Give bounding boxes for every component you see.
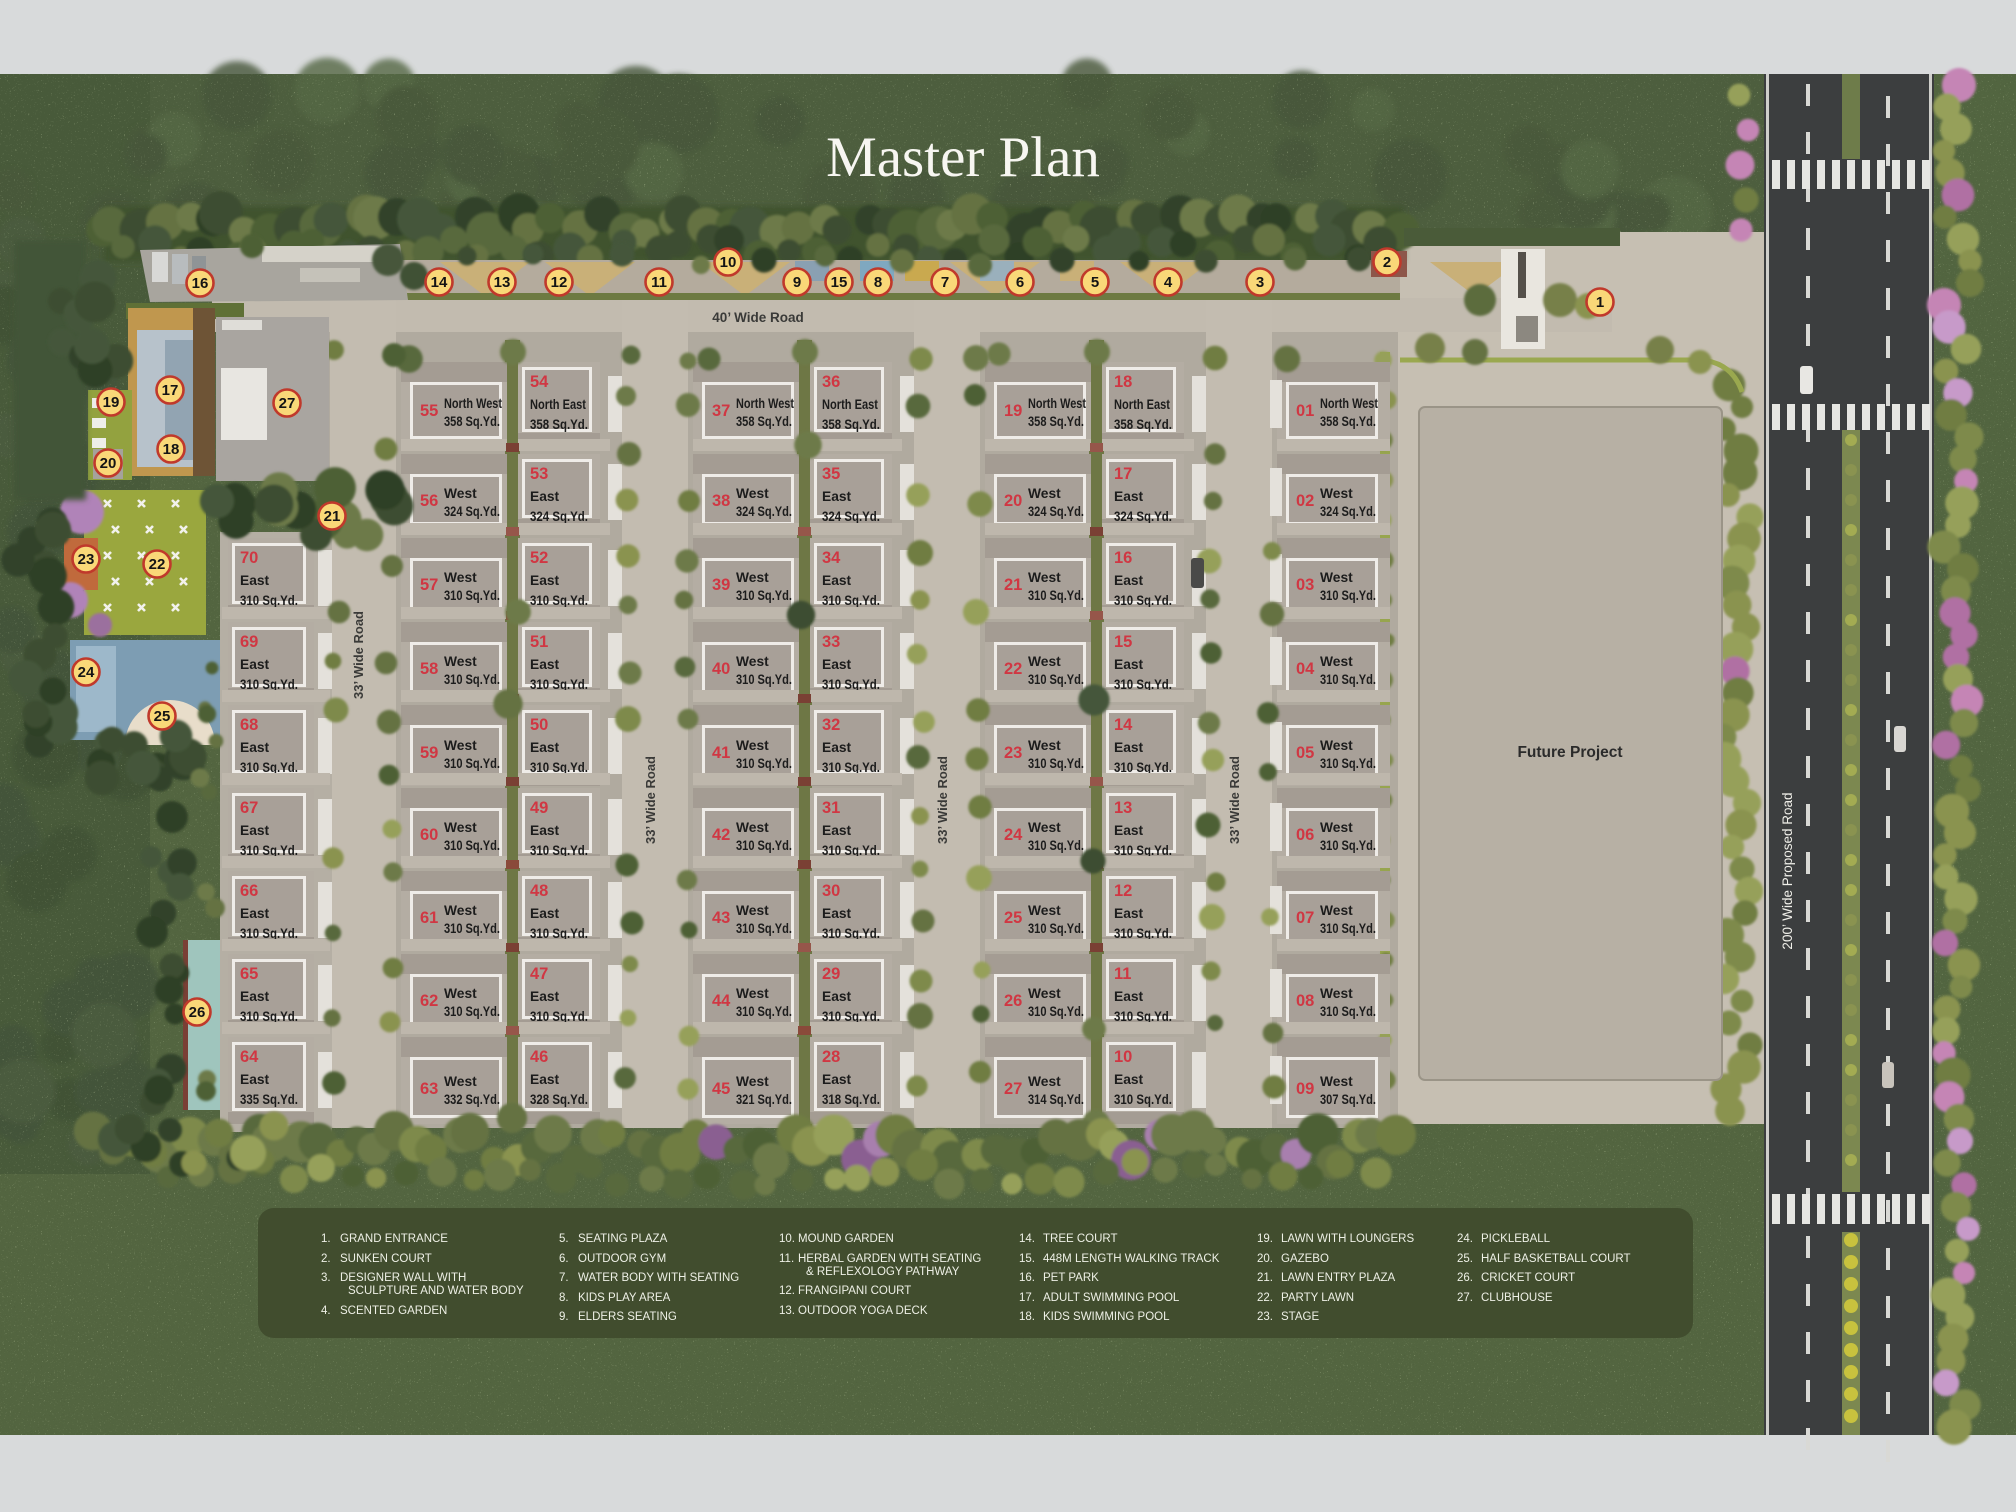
svg-text:44: 44 [712, 992, 731, 1010]
svg-text:East: East [822, 740, 852, 755]
svg-text:310 Sq.Yd.: 310 Sq.Yd. [530, 1009, 588, 1024]
svg-text:310 Sq.Yd.: 310 Sq.Yd. [822, 593, 880, 608]
svg-text:11: 11 [1114, 965, 1131, 983]
svg-text:North West: North West [1320, 396, 1378, 411]
svg-text:26.: 26. [1457, 1272, 1473, 1284]
svg-text:ADULT SWIMMING POOL: ADULT SWIMMING POOL [1043, 1292, 1180, 1304]
svg-text:OUTDOOR YOGA DECK: OUTDOOR YOGA DECK [798, 1305, 928, 1317]
svg-text:33’ Wide Road: 33’ Wide Road [643, 756, 658, 844]
svg-text:310 Sq.Yd.: 310 Sq.Yd. [736, 838, 792, 853]
svg-text:310 Sq.Yd.: 310 Sq.Yd. [736, 921, 792, 936]
svg-text:310 Sq.Yd.: 310 Sq.Yd. [1114, 677, 1172, 692]
svg-text:2.: 2. [321, 1253, 331, 1265]
svg-text:7: 7 [941, 274, 949, 291]
svg-text:14.: 14. [1019, 1233, 1035, 1245]
svg-text:54: 54 [530, 373, 549, 391]
svg-text:SUNKEN COURT: SUNKEN COURT [340, 1253, 432, 1265]
svg-text:358 Sq.Yd.: 358 Sq.Yd. [736, 414, 792, 429]
svg-text:16.: 16. [1019, 1272, 1035, 1284]
svg-text:15: 15 [1114, 633, 1132, 651]
svg-text:SCULPTURE AND WATER BODY: SCULPTURE AND WATER BODY [348, 1285, 524, 1297]
svg-text:19: 19 [1004, 402, 1022, 420]
svg-text:310 Sq.Yd.: 310 Sq.Yd. [736, 756, 792, 771]
svg-text:East: East [822, 989, 852, 1004]
svg-text:53: 53 [530, 465, 548, 483]
svg-text:10.: 10. [779, 1233, 795, 1245]
svg-text:310 Sq.Yd.: 310 Sq.Yd. [736, 672, 792, 687]
svg-text:17: 17 [162, 382, 179, 399]
svg-text:East: East [822, 823, 852, 838]
svg-text:310 Sq.Yd.: 310 Sq.Yd. [1320, 672, 1376, 687]
svg-text:310 Sq.Yd.: 310 Sq.Yd. [530, 593, 588, 608]
svg-text:38: 38 [712, 492, 730, 510]
svg-text:West: West [444, 486, 477, 501]
svg-text:310 Sq.Yd.: 310 Sq.Yd. [240, 677, 298, 692]
svg-text:55: 55 [420, 402, 438, 420]
svg-text:9: 9 [793, 274, 801, 291]
svg-text:310 Sq.Yd.: 310 Sq.Yd. [1320, 921, 1376, 936]
svg-text:West: West [736, 738, 769, 753]
svg-text:32: 32 [822, 716, 840, 734]
svg-text:West: West [444, 903, 477, 918]
svg-text:33’ Wide Road: 33’ Wide Road [935, 756, 950, 844]
svg-text:310 Sq.Yd.: 310 Sq.Yd. [240, 760, 298, 775]
svg-text:27.: 27. [1457, 1292, 1473, 1304]
svg-text:310 Sq.Yd.: 310 Sq.Yd. [444, 838, 500, 853]
svg-text:324 Sq.Yd.: 324 Sq.Yd. [444, 504, 500, 519]
svg-text:GRAND ENTRANCE: GRAND ENTRANCE [340, 1233, 448, 1245]
svg-text:324 Sq.Yd.: 324 Sq.Yd. [822, 509, 880, 524]
svg-text:310 Sq.Yd.: 310 Sq.Yd. [1114, 1092, 1172, 1107]
svg-text:PET PARK: PET PARK [1043, 1272, 1099, 1284]
svg-text:16: 16 [192, 275, 209, 292]
svg-text:310 Sq.Yd.: 310 Sq.Yd. [530, 926, 588, 941]
svg-text:East: East [1114, 657, 1144, 672]
svg-text:West: West [1028, 903, 1061, 918]
svg-text:358 Sq.Yd.: 358 Sq.Yd. [530, 417, 588, 432]
svg-text:East: East [240, 573, 270, 588]
svg-text:5.: 5. [559, 1233, 569, 1245]
svg-text:West: West [736, 1074, 769, 1089]
svg-text:310 Sq.Yd.: 310 Sq.Yd. [1114, 926, 1172, 941]
svg-text:West: West [736, 486, 769, 501]
svg-text:310 Sq.Yd.: 310 Sq.Yd. [240, 926, 298, 941]
svg-text:70: 70 [240, 549, 258, 567]
svg-text:22.: 22. [1257, 1292, 1273, 1304]
svg-text:310 Sq.Yd.: 310 Sq.Yd. [822, 760, 880, 775]
svg-text:310 Sq.Yd.: 310 Sq.Yd. [530, 677, 588, 692]
svg-text:310 Sq.Yd.: 310 Sq.Yd. [822, 843, 880, 858]
svg-text:332 Sq.Yd.: 332 Sq.Yd. [444, 1092, 500, 1107]
svg-text:37: 37 [712, 402, 730, 420]
svg-text:East: East [240, 989, 270, 1004]
svg-text:52: 52 [530, 549, 548, 567]
svg-text:08: 08 [1296, 992, 1314, 1010]
svg-text:West: West [444, 986, 477, 1001]
svg-text:West: West [1320, 738, 1353, 753]
svg-text:310 Sq.Yd.: 310 Sq.Yd. [1028, 756, 1084, 771]
svg-text:West: West [736, 654, 769, 669]
svg-text:04: 04 [1296, 660, 1315, 678]
svg-text:West: West [736, 986, 769, 1001]
svg-text:310 Sq.Yd.: 310 Sq.Yd. [822, 1009, 880, 1024]
svg-text:310 Sq.Yd.: 310 Sq.Yd. [736, 588, 792, 603]
svg-text:East: East [530, 740, 560, 755]
svg-text:13: 13 [494, 274, 511, 291]
svg-text:26: 26 [1004, 992, 1022, 1010]
svg-text:48: 48 [530, 882, 548, 900]
svg-text:10: 10 [1114, 1048, 1132, 1066]
svg-text:318 Sq.Yd.: 318 Sq.Yd. [822, 1092, 880, 1107]
svg-text:25: 25 [154, 708, 171, 725]
svg-text:West: West [1028, 986, 1061, 1001]
svg-text:SCENTED GARDEN: SCENTED GARDEN [340, 1305, 447, 1317]
svg-text:HERBAL GARDEN WITH SEATING: HERBAL GARDEN WITH SEATING [798, 1253, 981, 1265]
svg-text:43: 43 [712, 909, 730, 927]
svg-text:West: West [444, 654, 477, 669]
svg-text:40’ Wide Road: 40’ Wide Road [712, 310, 803, 325]
svg-text:11.: 11. [779, 1253, 794, 1265]
svg-text:33’ Wide Road: 33’ Wide Road [351, 611, 366, 699]
svg-text:East: East [1114, 823, 1144, 838]
svg-text:31: 31 [822, 799, 840, 817]
svg-text:12: 12 [1114, 882, 1132, 900]
svg-text:7.: 7. [559, 1272, 569, 1284]
svg-text:324 Sq.Yd.: 324 Sq.Yd. [530, 509, 588, 524]
svg-text:310 Sq.Yd.: 310 Sq.Yd. [530, 843, 588, 858]
svg-text:22: 22 [1004, 660, 1022, 678]
svg-text:West: West [1320, 820, 1353, 835]
svg-text:Future Project: Future Project [1517, 744, 1622, 761]
svg-text:East: East [240, 906, 270, 921]
svg-text:ELDERS SEATING: ELDERS SEATING [578, 1311, 677, 1323]
svg-text:310 Sq.Yd.: 310 Sq.Yd. [240, 843, 298, 858]
svg-text:17: 17 [1114, 465, 1132, 483]
svg-text:23: 23 [78, 551, 95, 568]
svg-text:West: West [1320, 654, 1353, 669]
svg-text:35: 35 [822, 465, 840, 483]
svg-text:West: West [1320, 903, 1353, 918]
svg-text:310 Sq.Yd.: 310 Sq.Yd. [1320, 838, 1376, 853]
svg-text:24.: 24. [1457, 1233, 1473, 1245]
svg-text:SEATING PLAZA: SEATING PLAZA [578, 1233, 668, 1245]
svg-text:East: East [1114, 1072, 1144, 1087]
svg-text:11: 11 [651, 274, 667, 291]
svg-text:310 Sq.Yd.: 310 Sq.Yd. [1114, 843, 1172, 858]
svg-text:East: East [1114, 489, 1144, 504]
svg-text:62: 62 [420, 992, 438, 1010]
svg-text:18: 18 [1114, 373, 1132, 391]
svg-text:WATER BODY WITH SEATING: WATER BODY WITH SEATING [578, 1272, 739, 1284]
svg-text:East: East [530, 906, 560, 921]
svg-text:8.: 8. [559, 1292, 569, 1304]
svg-text:East: East [240, 657, 270, 672]
svg-text:310 Sq.Yd.: 310 Sq.Yd. [822, 677, 880, 692]
svg-text:East: East [530, 1072, 560, 1087]
svg-text:34: 34 [822, 549, 841, 567]
svg-text:45: 45 [712, 1080, 730, 1098]
svg-text:64: 64 [240, 1048, 259, 1066]
svg-text:14: 14 [1114, 716, 1133, 734]
svg-text:TREE COURT: TREE COURT [1043, 1233, 1118, 1245]
svg-text:CLUBHOUSE: CLUBHOUSE [1481, 1292, 1553, 1304]
svg-text:19.: 19. [1257, 1233, 1273, 1245]
svg-text:4: 4 [1164, 274, 1173, 291]
svg-text:HALF BASKETBALL COURT: HALF BASKETBALL COURT [1481, 1253, 1631, 1265]
svg-text:Master Plan: Master Plan [826, 126, 1100, 189]
svg-text:16: 16 [1114, 549, 1132, 567]
svg-text:West: West [1320, 1074, 1353, 1089]
svg-text:FRANGIPANI COURT: FRANGIPANI COURT [798, 1285, 911, 1297]
svg-text:North East: North East [822, 397, 878, 412]
svg-text:63: 63 [420, 1080, 438, 1098]
svg-text:307 Sq.Yd.: 307 Sq.Yd. [1320, 1092, 1376, 1107]
svg-text:20.: 20. [1257, 1253, 1273, 1265]
svg-text:05: 05 [1296, 744, 1314, 762]
svg-text:LAWN ENTRY PLAZA: LAWN ENTRY PLAZA [1281, 1272, 1396, 1284]
svg-text:East: East [1114, 573, 1144, 588]
svg-text:East: East [240, 740, 270, 755]
svg-text:DESIGNER WALL WITH: DESIGNER WALL WITH [340, 1272, 466, 1284]
svg-text:324 Sq.Yd.: 324 Sq.Yd. [1028, 504, 1084, 519]
svg-text:310 Sq.Yd.: 310 Sq.Yd. [444, 921, 500, 936]
svg-text:14: 14 [431, 274, 448, 291]
svg-text:13.: 13. [779, 1305, 795, 1317]
svg-text:310 Sq.Yd.: 310 Sq.Yd. [1028, 588, 1084, 603]
svg-text:310 Sq.Yd.: 310 Sq.Yd. [530, 760, 588, 775]
svg-text:27: 27 [279, 395, 296, 412]
svg-text:West: West [736, 570, 769, 585]
svg-text:KIDS SWIMMING POOL: KIDS SWIMMING POOL [1043, 1311, 1170, 1323]
svg-text:CRICKET COURT: CRICKET COURT [1481, 1272, 1575, 1284]
svg-text:310 Sq.Yd.: 310 Sq.Yd. [1114, 593, 1172, 608]
svg-text:33: 33 [822, 633, 840, 651]
svg-text:321 Sq.Yd.: 321 Sq.Yd. [736, 1092, 792, 1107]
svg-text:310 Sq.Yd.: 310 Sq.Yd. [1028, 672, 1084, 687]
svg-text:57: 57 [420, 576, 438, 594]
svg-text:22: 22 [149, 556, 166, 573]
svg-text:West: West [444, 570, 477, 585]
svg-text:310 Sq.Yd.: 310 Sq.Yd. [444, 756, 500, 771]
svg-text:07: 07 [1296, 909, 1314, 927]
svg-text:28: 28 [822, 1048, 840, 1066]
svg-text:324 Sq.Yd.: 324 Sq.Yd. [736, 504, 792, 519]
svg-text:47: 47 [530, 965, 548, 983]
svg-text:310 Sq.Yd.: 310 Sq.Yd. [736, 1004, 792, 1019]
svg-text:30: 30 [822, 882, 840, 900]
svg-text:East: East [530, 657, 560, 672]
svg-text:West: West [1028, 820, 1061, 835]
svg-text:59: 59 [420, 744, 438, 762]
svg-text:1: 1 [1596, 294, 1604, 311]
svg-text:West: West [736, 903, 769, 918]
svg-text:East: East [240, 1072, 270, 1087]
svg-text:GAZEBO: GAZEBO [1281, 1253, 1329, 1265]
svg-text:21: 21 [324, 508, 341, 525]
svg-text:KIDS PLAY AREA: KIDS PLAY AREA [578, 1292, 671, 1304]
svg-text:West: West [1028, 738, 1061, 753]
svg-text:12.: 12. [779, 1285, 795, 1297]
svg-text:40: 40 [712, 660, 730, 678]
svg-text:36: 36 [822, 373, 840, 391]
svg-text:19: 19 [103, 394, 120, 411]
svg-text:310 Sq.Yd.: 310 Sq.Yd. [1320, 756, 1376, 771]
svg-text:East: East [822, 657, 852, 672]
svg-text:2: 2 [1383, 254, 1391, 271]
svg-text:North East: North East [1114, 397, 1170, 412]
svg-text:310 Sq.Yd.: 310 Sq.Yd. [1028, 1004, 1084, 1019]
svg-text:12: 12 [551, 274, 568, 291]
svg-text:310 Sq.Yd.: 310 Sq.Yd. [1114, 1009, 1172, 1024]
svg-text:West: West [736, 820, 769, 835]
svg-text:East: East [530, 489, 560, 504]
svg-text:50: 50 [530, 716, 548, 734]
svg-text:56: 56 [420, 492, 438, 510]
svg-text:North West: North West [444, 396, 502, 411]
svg-text:East: East [822, 1072, 852, 1087]
svg-text:West: West [1028, 486, 1061, 501]
svg-text:East: East [530, 989, 560, 1004]
svg-text:448M LENGTH WALKING TRACK: 448M LENGTH WALKING TRACK [1043, 1253, 1220, 1265]
svg-text:9.: 9. [559, 1311, 569, 1323]
svg-text:LAWN WITH LOUNGERS: LAWN WITH LOUNGERS [1281, 1233, 1414, 1245]
svg-text:PARTY LAWN: PARTY LAWN [1281, 1292, 1354, 1304]
svg-text:358 Sq.Yd.: 358 Sq.Yd. [1114, 417, 1172, 432]
svg-text:01: 01 [1296, 402, 1314, 420]
svg-text:23.: 23. [1257, 1311, 1273, 1323]
svg-text:24: 24 [78, 664, 95, 681]
svg-text:5: 5 [1091, 274, 1099, 291]
svg-text:3: 3 [1256, 274, 1264, 291]
svg-text:310 Sq.Yd.: 310 Sq.Yd. [444, 588, 500, 603]
svg-text:66: 66 [240, 882, 258, 900]
svg-text:West: West [1320, 486, 1353, 501]
svg-text:West: West [1320, 986, 1353, 1001]
svg-text:26: 26 [189, 1004, 206, 1021]
svg-text:328 Sq.Yd.: 328 Sq.Yd. [530, 1092, 588, 1107]
svg-text:East: East [822, 489, 852, 504]
svg-text:46: 46 [530, 1048, 548, 1066]
svg-text:1.: 1. [321, 1233, 331, 1245]
svg-text:41: 41 [712, 744, 730, 762]
svg-text:358 Sq.Yd.: 358 Sq.Yd. [822, 417, 880, 432]
svg-text:East: East [530, 823, 560, 838]
svg-text:East: East [1114, 740, 1144, 755]
svg-text:15.: 15. [1019, 1253, 1035, 1265]
svg-text:29: 29 [822, 965, 840, 983]
svg-text:310 Sq.Yd.: 310 Sq.Yd. [444, 1004, 500, 1019]
svg-text:20: 20 [1004, 492, 1022, 510]
svg-text:21.: 21. [1257, 1272, 1273, 1284]
svg-text:East: East [530, 573, 560, 588]
svg-text:67: 67 [240, 799, 258, 817]
svg-text:West: West [444, 1074, 477, 1089]
svg-text:49: 49 [530, 799, 548, 817]
svg-text:21: 21 [1004, 576, 1022, 594]
svg-text:North West: North West [1028, 396, 1086, 411]
svg-text:18: 18 [163, 441, 180, 458]
svg-text:6.: 6. [559, 1253, 569, 1265]
svg-text:27: 27 [1004, 1080, 1022, 1098]
svg-text:324 Sq.Yd.: 324 Sq.Yd. [1114, 509, 1172, 524]
svg-text:23: 23 [1004, 744, 1022, 762]
svg-text:North East: North East [530, 397, 586, 412]
svg-text:OUTDOOR GYM: OUTDOOR GYM [578, 1253, 666, 1265]
svg-text:18.: 18. [1019, 1311, 1035, 1323]
svg-text:25: 25 [1004, 909, 1022, 927]
svg-text:60: 60 [420, 826, 438, 844]
svg-text:MOUND GARDEN: MOUND GARDEN [798, 1233, 894, 1245]
svg-text:& REFLEXOLOGY PATHWAY: & REFLEXOLOGY PATHWAY [806, 1266, 960, 1278]
svg-text:68: 68 [240, 716, 258, 734]
svg-text:East: East [822, 573, 852, 588]
svg-text:06: 06 [1296, 826, 1314, 844]
svg-text:58: 58 [420, 660, 438, 678]
svg-text:09: 09 [1296, 1080, 1314, 1098]
svg-text:358 Sq.Yd.: 358 Sq.Yd. [444, 414, 500, 429]
svg-text:West: West [444, 820, 477, 835]
svg-text:PICKLEBALL: PICKLEBALL [1481, 1233, 1551, 1245]
svg-text:East: East [240, 823, 270, 838]
svg-text:200’ Wide Proposed Road: 200’ Wide Proposed Road [1780, 792, 1795, 949]
svg-text:West: West [1028, 570, 1061, 585]
svg-text:51: 51 [530, 633, 548, 651]
svg-text:20: 20 [100, 455, 117, 472]
svg-text:310 Sq.Yd.: 310 Sq.Yd. [1320, 1004, 1376, 1019]
svg-text:358 Sq.Yd.: 358 Sq.Yd. [1028, 414, 1084, 429]
svg-text:4.: 4. [321, 1305, 331, 1317]
svg-text:310 Sq.Yd.: 310 Sq.Yd. [1320, 588, 1376, 603]
svg-text:69: 69 [240, 633, 258, 651]
svg-text:North West: North West [736, 396, 794, 411]
svg-text:335 Sq.Yd.: 335 Sq.Yd. [240, 1092, 298, 1107]
svg-text:61: 61 [420, 909, 438, 927]
svg-text:03: 03 [1296, 576, 1314, 594]
svg-text:65: 65 [240, 965, 258, 983]
svg-text:6: 6 [1016, 274, 1024, 291]
svg-text:East: East [1114, 906, 1144, 921]
svg-text:8: 8 [874, 274, 882, 291]
svg-text:West: West [444, 738, 477, 753]
svg-text:33’ Wide Road: 33’ Wide Road [1227, 756, 1242, 844]
svg-text:STAGE: STAGE [1281, 1311, 1319, 1323]
svg-text:24: 24 [1004, 826, 1023, 844]
svg-text:310 Sq.Yd.: 310 Sq.Yd. [1028, 838, 1084, 853]
svg-text:15: 15 [831, 274, 848, 291]
svg-text:310 Sq.Yd.: 310 Sq.Yd. [1028, 921, 1084, 936]
svg-text:324 Sq.Yd.: 324 Sq.Yd. [1320, 504, 1376, 519]
svg-text:358 Sq.Yd.: 358 Sq.Yd. [1320, 414, 1376, 429]
svg-text:East: East [822, 906, 852, 921]
svg-text:13: 13 [1114, 799, 1132, 817]
svg-text:310 Sq.Yd.: 310 Sq.Yd. [240, 1009, 298, 1024]
svg-text:25.: 25. [1457, 1253, 1473, 1265]
svg-text:10: 10 [720, 254, 737, 271]
svg-text:310 Sq.Yd.: 310 Sq.Yd. [822, 926, 880, 941]
svg-text:West: West [1320, 570, 1353, 585]
svg-text:310 Sq.Yd.: 310 Sq.Yd. [444, 672, 500, 687]
svg-text:42: 42 [712, 826, 730, 844]
svg-text:West: West [1028, 1074, 1061, 1089]
svg-text:314 Sq.Yd.: 314 Sq.Yd. [1028, 1092, 1084, 1107]
svg-text:310 Sq.Yd.: 310 Sq.Yd. [1114, 760, 1172, 775]
svg-text:3.: 3. [321, 1272, 331, 1284]
svg-text:39: 39 [712, 576, 730, 594]
svg-text:East: East [1114, 989, 1144, 1004]
svg-text:West: West [1028, 654, 1061, 669]
svg-text:310 Sq.Yd.: 310 Sq.Yd. [240, 593, 298, 608]
svg-text:02: 02 [1296, 492, 1314, 510]
